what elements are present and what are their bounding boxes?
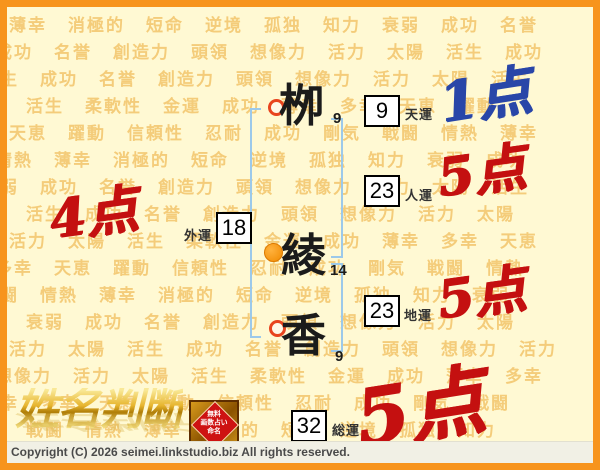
stamp-line-1: 無料: [194, 410, 233, 419]
total-luck-value-box: 32: [291, 410, 327, 442]
seimei-result-page: 薄幸消極的短命逆境孤独知力衰弱成功名誉成功名誉創造力頭領想像力活力太陽活生成功活…: [0, 0, 600, 470]
person-luck-label: 人運: [405, 185, 433, 204]
char2-stroke-count: 14: [330, 262, 347, 279]
earth-luck-value-box: 23: [364, 295, 400, 327]
background-word-row: 薄幸消極的短命逆境孤独知力衰弱成功名誉: [9, 11, 559, 36]
copyright-text: Copyright (C) 2026 seimei.linkstudio.biz…: [11, 445, 350, 459]
heaven-luck-label: 天運: [405, 104, 433, 123]
stamp-line-3: 命名: [194, 427, 233, 436]
heaven-luck-score: 1点: [435, 62, 534, 130]
name-char-1: 栁: [279, 83, 324, 128]
outer-luck-value-box: 18: [216, 212, 252, 244]
person-luck-score: 5点: [434, 141, 529, 205]
outer-luck-score: 4点: [46, 183, 141, 247]
footer-band: Copyright (C) 2026 seimei.linkstudio.biz…: [7, 441, 593, 463]
outer-luck-label: 外運: [184, 225, 212, 244]
person-luck-bracket: [331, 118, 343, 258]
person-luck-value-box: 23: [364, 175, 400, 207]
stamp-line-2: 画数占い: [194, 419, 233, 428]
char1-stroke-count: 9: [333, 110, 341, 127]
char3-stroke-count: 9: [335, 348, 343, 365]
heaven-luck-value-box: 9: [364, 95, 400, 127]
earth-luck-label: 地運: [404, 305, 432, 324]
stamp-text: 無料 画数占い 命名: [194, 410, 233, 436]
site-logo-reflection: 姓名判断: [15, 411, 183, 431]
name-char-3: 香: [281, 313, 326, 358]
background-word-row: 成功名誉創造力頭領想像力活力太陽活生成功: [0, 38, 564, 63]
name-char-2: 綾: [281, 233, 326, 278]
earth-luck-score: 5点: [434, 263, 529, 327]
